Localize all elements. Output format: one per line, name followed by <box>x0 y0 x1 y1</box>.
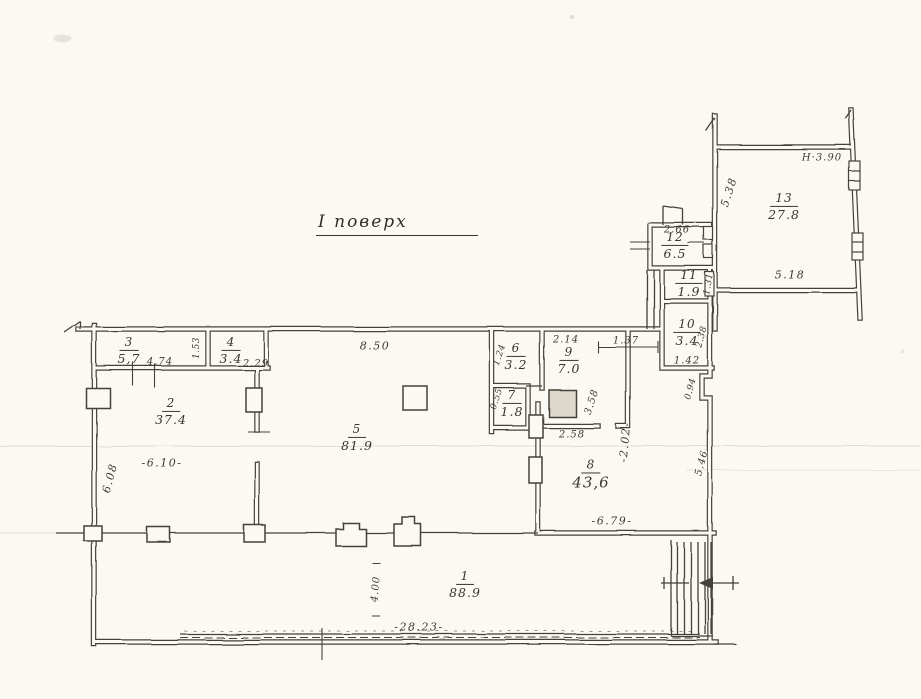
dim-room4-width: 2.29 <box>243 359 269 370</box>
dim-room2-width: -6.10- <box>142 457 183 470</box>
room-number: 9 <box>560 346 579 361</box>
room-number: 6 <box>507 342 526 357</box>
room-number: 5 <box>348 423 367 438</box>
walls-core <box>78 110 860 644</box>
dim-top-span: 8.50 <box>360 340 391 353</box>
room-number: 3 <box>120 336 139 351</box>
room-area: 1.8 <box>501 404 524 419</box>
room-area: 6.5 <box>664 246 687 261</box>
room-number: 13 <box>770 192 797 207</box>
room-1-label: 1 88.9 <box>449 570 481 600</box>
room-number: 4 <box>222 336 241 351</box>
room-area: 27.8 <box>768 207 800 222</box>
room-area: 1.9 <box>678 284 701 299</box>
room-number: 7 <box>503 389 522 404</box>
dim-room9-width: 2.14 <box>553 335 579 346</box>
room-area: 7.0 <box>558 361 581 376</box>
room-2-label: 2 37.4 <box>155 397 187 427</box>
room-area: 3.4 <box>220 351 243 366</box>
room-area: 37.4 <box>155 412 187 427</box>
room-number: 1 <box>456 570 475 585</box>
room-area: 5,7 <box>118 351 141 366</box>
room-8-label: 8 43,6 <box>572 458 609 491</box>
dim-door-span: 1.37 <box>613 336 639 347</box>
floorplan-page: І поверх 1 88.9 2 37.4 3 5,7 4 3.4 5 81.… <box>0 0 921 699</box>
dim-room10-bottom: 1.42 <box>674 356 700 367</box>
dim-room9-bottom: 2.58 <box>559 430 585 441</box>
dim-room3-height: 1.53 <box>192 337 202 359</box>
entrance-arrow-icon <box>661 576 739 590</box>
walls-outer <box>78 110 860 644</box>
room-area: 3.2 <box>505 357 528 372</box>
floor-title: І поверх <box>316 212 478 236</box>
dim-room1-depth: 4.00 <box>369 575 382 602</box>
room-area: 81.9 <box>341 438 373 453</box>
room-9-label: 9 7.0 <box>558 346 581 376</box>
room-number: 8 <box>582 458 601 473</box>
room-area: 88.9 <box>449 585 481 600</box>
staircase <box>671 540 713 636</box>
room-11-label: 11 1.9 <box>675 269 702 299</box>
dim-ceiling-height: Н·3.90 <box>802 153 842 164</box>
dim-total-width: -28.23- <box>394 621 443 634</box>
floor-title-text: І поверх <box>318 212 408 232</box>
dim-room13-bottom: 5.18 <box>775 269 806 282</box>
room-5-label: 5 81.9 <box>341 423 373 453</box>
room-4-label: 4 3.4 <box>220 336 243 366</box>
room-number: 11 <box>675 269 702 284</box>
room-3-label: 3 5,7 <box>118 336 141 366</box>
room-area: 43,6 <box>572 473 609 491</box>
dim-room12-top: 2.66 <box>664 225 690 236</box>
room-number: 10 <box>673 318 700 333</box>
dim-room3-width: 4.74 <box>147 357 173 368</box>
room-13-label: 13 27.8 <box>768 192 800 222</box>
room-number: 2 <box>162 397 181 412</box>
dim-room8-bottom: -6.79- <box>592 515 633 528</box>
